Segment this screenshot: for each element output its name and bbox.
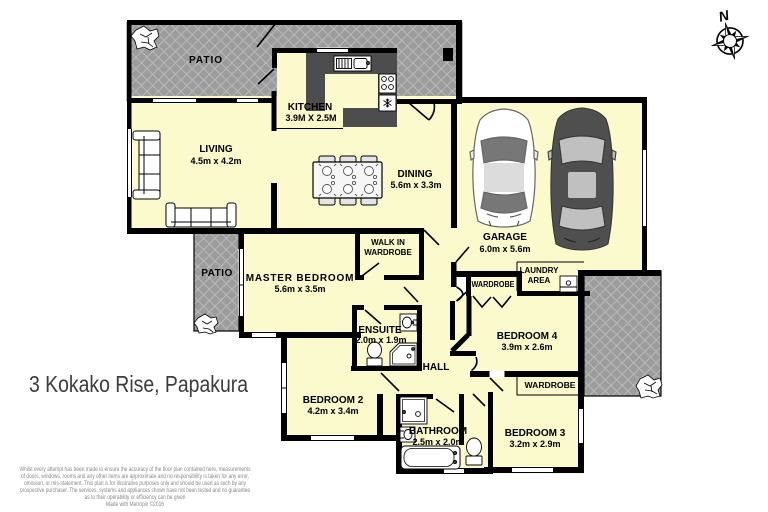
svg-text:KITCHEN: KITCHEN xyxy=(288,102,332,113)
svg-text:2.5m x 2.0m: 2.5m x 2.0m xyxy=(412,437,463,447)
svg-text:5.6m x 3.3m: 5.6m x 3.3m xyxy=(390,180,441,190)
svg-text:BATHROOM: BATHROOM xyxy=(409,426,467,437)
svg-text:of doors, windows, rooms and a: of doors, windows, rooms and any other i… xyxy=(21,474,249,480)
svg-text:5.6m x 3.5m: 5.6m x 3.5m xyxy=(274,284,325,294)
svg-text:WARDROBE: WARDROBE xyxy=(525,381,577,390)
svg-text:Whilst every attempt has been: Whilst every attempt has been made to en… xyxy=(20,467,251,473)
svg-text:MASTER BEDROOM: MASTER BEDROOM xyxy=(246,273,354,284)
svg-text:HALL: HALL xyxy=(423,362,450,373)
svg-text:BEDROOM 4: BEDROOM 4 xyxy=(497,331,558,342)
svg-text:DINING: DINING xyxy=(398,169,433,180)
svg-text:3.2m x 2.9m: 3.2m x 2.9m xyxy=(509,439,560,449)
svg-text:3.9M X 2.5M: 3.9M X 2.5M xyxy=(285,113,336,123)
svg-text:3 Kokako Rise, Papakura: 3 Kokako Rise, Papakura xyxy=(29,371,248,397)
svg-text:AREA: AREA xyxy=(528,276,551,285)
svg-text:WARDROBE: WARDROBE xyxy=(364,248,412,257)
svg-text:2.0m x 1.9m: 2.0m x 1.9m xyxy=(355,335,406,345)
svg-text:omission, or mis-statement. Th: omission, or mis-statement. This plan is… xyxy=(24,481,246,487)
svg-text:LIVING: LIVING xyxy=(199,144,233,155)
svg-text:GARAGE: GARAGE xyxy=(483,232,527,243)
svg-text:PATIO: PATIO xyxy=(201,268,233,279)
svg-text:6.0m x 5.6m: 6.0m x 5.6m xyxy=(479,244,530,254)
svg-text:WALK IN: WALK IN xyxy=(371,238,405,247)
svg-text:4.2m x 3.4m: 4.2m x 3.4m xyxy=(307,406,358,416)
svg-text:BEDROOM 2: BEDROOM 2 xyxy=(303,395,364,406)
svg-text:PATIO: PATIO xyxy=(189,55,223,66)
svg-text:3.9m x 2.6m: 3.9m x 2.6m xyxy=(501,342,552,352)
svg-text:4.5m x 4.2m: 4.5m x 4.2m xyxy=(190,156,241,166)
svg-text:WARDROBE: WARDROBE xyxy=(472,280,516,289)
svg-text:Made with Metropix ©2016: Made with Metropix ©2016 xyxy=(106,501,165,508)
svg-text:as to their operability or eff: as to their operability or efficiency ca… xyxy=(85,495,186,501)
svg-text:LAUNDRY: LAUNDRY xyxy=(520,266,559,275)
svg-text:prospective purchaser. The ser: prospective purchaser. The services, sys… xyxy=(20,488,251,494)
svg-text:BEDROOM 3: BEDROOM 3 xyxy=(505,428,566,439)
